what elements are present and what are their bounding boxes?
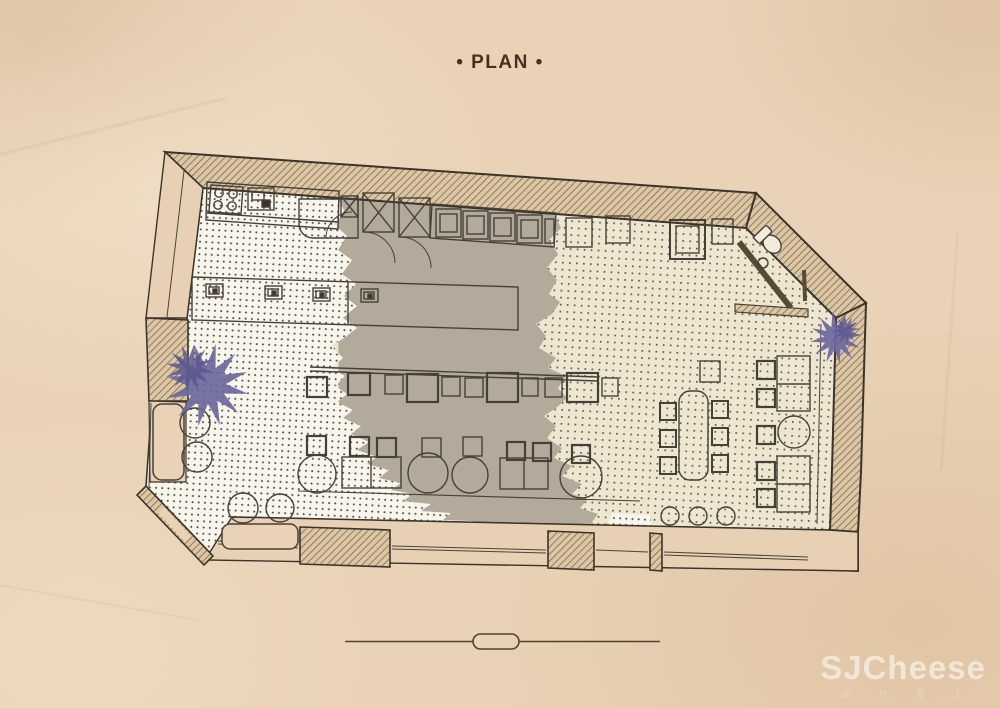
window-bench <box>153 404 184 480</box>
scale-divider <box>345 634 660 649</box>
wall-bottom-pier-1 <box>300 527 390 567</box>
wall-bottom-pier-3 <box>650 533 662 571</box>
wc-wall-stub <box>804 270 805 301</box>
floor-plan <box>0 0 1000 708</box>
wall-bottom-pier-2 <box>548 531 594 570</box>
window-bench <box>222 524 298 549</box>
